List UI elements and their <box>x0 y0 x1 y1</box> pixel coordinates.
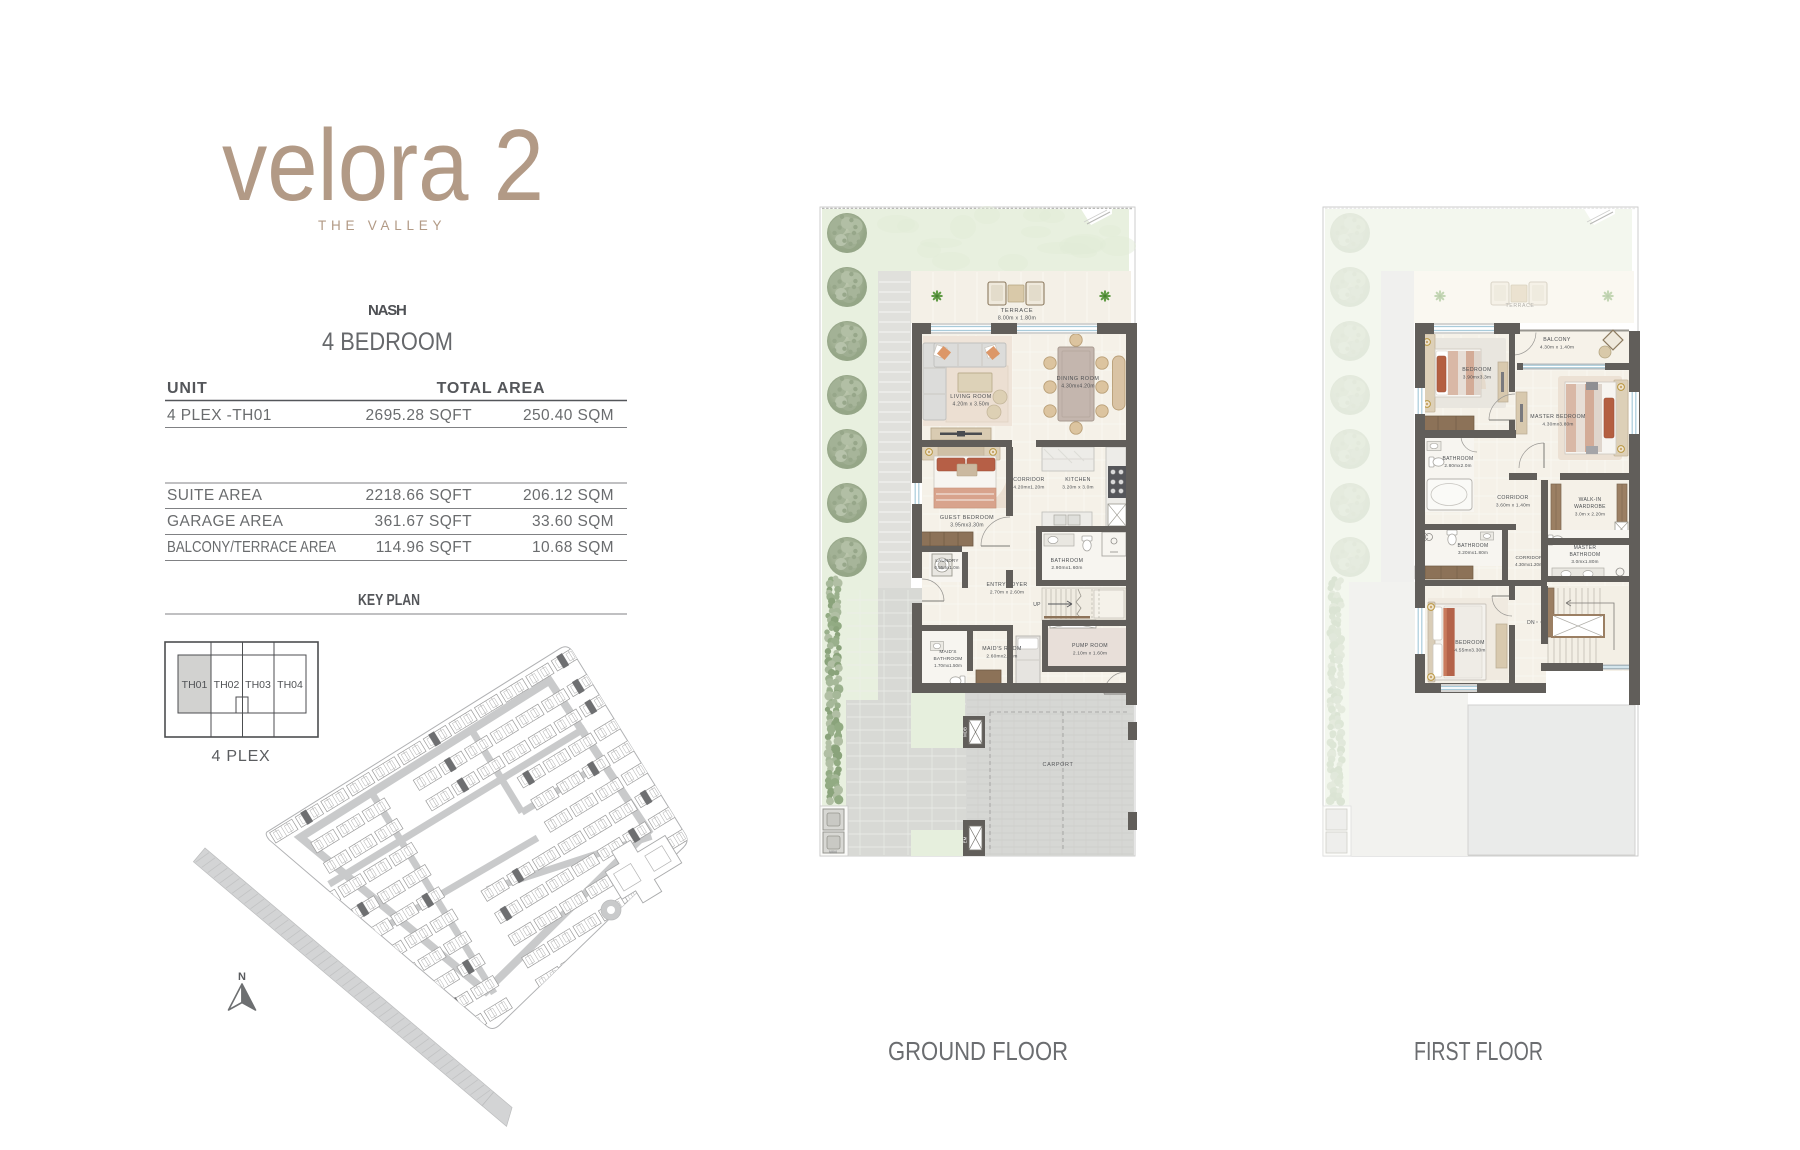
svg-text:MASTER BEDROOM: MASTER BEDROOM <box>1530 414 1585 420</box>
svg-text:CARPORT: CARPORT <box>1043 762 1074 768</box>
svg-text:GARAGE AREA: GARAGE AREA <box>167 513 284 530</box>
svg-text:EM: EM <box>963 836 968 843</box>
svg-text:GROUND FLOOR: GROUND FLOOR <box>888 1036 1068 1066</box>
svg-text:0.95mx1.0m: 0.95mx1.0m <box>934 565 959 570</box>
svg-text:SUITE AREA: SUITE AREA <box>167 487 263 504</box>
svg-text:TH01: TH01 <box>182 679 208 691</box>
svg-text:UNIT: UNIT <box>167 380 208 397</box>
svg-text:WARDROBE: WARDROBE <box>1574 504 1606 510</box>
svg-text:3.20mx1.80m: 3.20mx1.80m <box>1458 550 1488 555</box>
svg-text:DN: DN <box>1527 620 1535 626</box>
svg-text:MAID'S: MAID'S <box>939 649 956 655</box>
svg-text:206.12 SQM: 206.12 SQM <box>523 487 614 504</box>
svg-text:TERRACE: TERRACE <box>1001 308 1034 314</box>
svg-text:4.30m x 1.40m: 4.30m x 1.40m <box>1540 345 1574 351</box>
svg-text:LAUNDRY: LAUNDRY <box>935 558 958 563</box>
svg-text:4.20m x 3.50m: 4.20m x 3.50m <box>953 402 990 408</box>
svg-text:4 PLEX -TH01: 4 PLEX -TH01 <box>167 407 272 424</box>
svg-text:velora 2: velora 2 <box>222 110 544 222</box>
svg-text:BATHROOM: BATHROOM <box>1458 543 1489 549</box>
svg-text:MAID'S ROOM: MAID'S ROOM <box>982 646 1021 652</box>
svg-text:8.00m x 1.80m: 8.00m x 1.80m <box>998 316 1036 322</box>
svg-text:BEDROOM: BEDROOM <box>1462 367 1492 373</box>
svg-text:FIRST FLOOR: FIRST FLOOR <box>1414 1036 1543 1066</box>
svg-text:BALCONY: BALCONY <box>1543 337 1571 343</box>
svg-text:1.70mx1.50m: 1.70mx1.50m <box>934 663 962 668</box>
svg-text:NASH: NASH <box>368 302 408 319</box>
svg-text:4.30mx4.20m: 4.30mx4.20m <box>1061 384 1095 390</box>
svg-text:250.40 SQM: 250.40 SQM <box>523 407 614 424</box>
svg-text:LIVING ROOM: LIVING ROOM <box>950 394 991 400</box>
svg-text:KITCHEN: KITCHEN <box>1065 477 1091 483</box>
svg-text:3.60m x 1.40m: 3.60m x 1.40m <box>1496 503 1530 509</box>
svg-text:3.20m x 3.0m: 3.20m x 3.0m <box>1062 485 1093 491</box>
svg-text:MDB: MDB <box>963 727 968 737</box>
svg-text:N: N <box>238 971 246 983</box>
svg-text:BATHROOM: BATHROOM <box>1570 552 1601 558</box>
svg-text:CORRIDOR: CORRIDOR <box>1497 495 1528 501</box>
svg-text:3.0m x 2.20m: 3.0m x 2.20m <box>1575 512 1605 517</box>
svg-text:2.80mx2.0m: 2.80mx2.0m <box>1444 463 1471 468</box>
svg-text:KEY PLAN: KEY PLAN <box>358 592 420 609</box>
svg-text:114.96 SQFT: 114.96 SQFT <box>376 539 472 556</box>
svg-text:10.68 SQM: 10.68 SQM <box>532 539 614 556</box>
svg-text:TOTAL AREA: TOTAL AREA <box>437 380 546 397</box>
svg-text:BATHROOM: BATHROOM <box>1051 558 1084 564</box>
svg-text:4.30mx1.20m: 4.30mx1.20m <box>1515 562 1543 567</box>
svg-text:WM: WM <box>829 850 837 855</box>
svg-text:TH04: TH04 <box>277 679 303 691</box>
svg-text:361.67 SQFT: 361.67 SQFT <box>375 513 473 530</box>
svg-text:CORRIDOR: CORRIDOR <box>1515 555 1543 560</box>
svg-text:BATHROOM: BATHROOM <box>1443 456 1474 462</box>
svg-text:2.70m x 2.60m: 2.70m x 2.60m <box>990 590 1024 596</box>
svg-text:CORRIDOR: CORRIDOR <box>1013 477 1044 483</box>
svg-text:4.20mx1.20m: 4.20mx1.20m <box>1013 485 1044 491</box>
svg-text:TERRACE: TERRACE <box>1506 303 1535 309</box>
svg-text:MASTER: MASTER <box>1574 545 1597 551</box>
svg-text:3.0mx1.80m: 3.0mx1.80m <box>1571 559 1598 564</box>
svg-text:3.90mx3.3m: 3.90mx3.3m <box>1463 375 1491 381</box>
svg-text:33.60 SQM: 33.60 SQM <box>532 513 614 530</box>
svg-text:TH03: TH03 <box>245 679 271 691</box>
svg-text:WALK-IN: WALK-IN <box>1579 497 1602 503</box>
svg-text:GUEST BEDROOM: GUEST BEDROOM <box>940 515 994 521</box>
svg-text:2218.66 SQFT: 2218.66 SQFT <box>366 487 473 504</box>
svg-text:TH02: TH02 <box>214 679 240 691</box>
svg-text:THE VALLEY: THE VALLEY <box>318 218 448 233</box>
svg-text:BEDROOM: BEDROOM <box>1455 640 1485 646</box>
svg-text:4.55mx3.30m: 4.55mx3.30m <box>1454 648 1485 654</box>
svg-text:4.30mx3.80m: 4.30mx3.80m <box>1542 422 1573 428</box>
svg-text:4 PLEX: 4 PLEX <box>211 748 270 765</box>
svg-text:2695.28 SQFT: 2695.28 SQFT <box>366 407 473 424</box>
svg-text:2.90mx1.60m: 2.90mx1.60m <box>1051 565 1082 571</box>
svg-text:2.10m x 1.60m: 2.10m x 1.60m <box>1073 651 1107 657</box>
svg-text:UP: UP <box>1033 602 1041 608</box>
svg-text:BALCONY/TERRACE AREA: BALCONY/TERRACE AREA <box>167 539 337 556</box>
svg-text:3.95mx3.30m: 3.95mx3.30m <box>950 523 984 529</box>
svg-text:PUMP ROOM: PUMP ROOM <box>1072 643 1108 649</box>
svg-text:BATHROOM: BATHROOM <box>934 656 963 662</box>
svg-text:DINING ROOM: DINING ROOM <box>1057 376 1100 382</box>
svg-text:4 BEDROOM: 4 BEDROOM <box>322 328 453 356</box>
